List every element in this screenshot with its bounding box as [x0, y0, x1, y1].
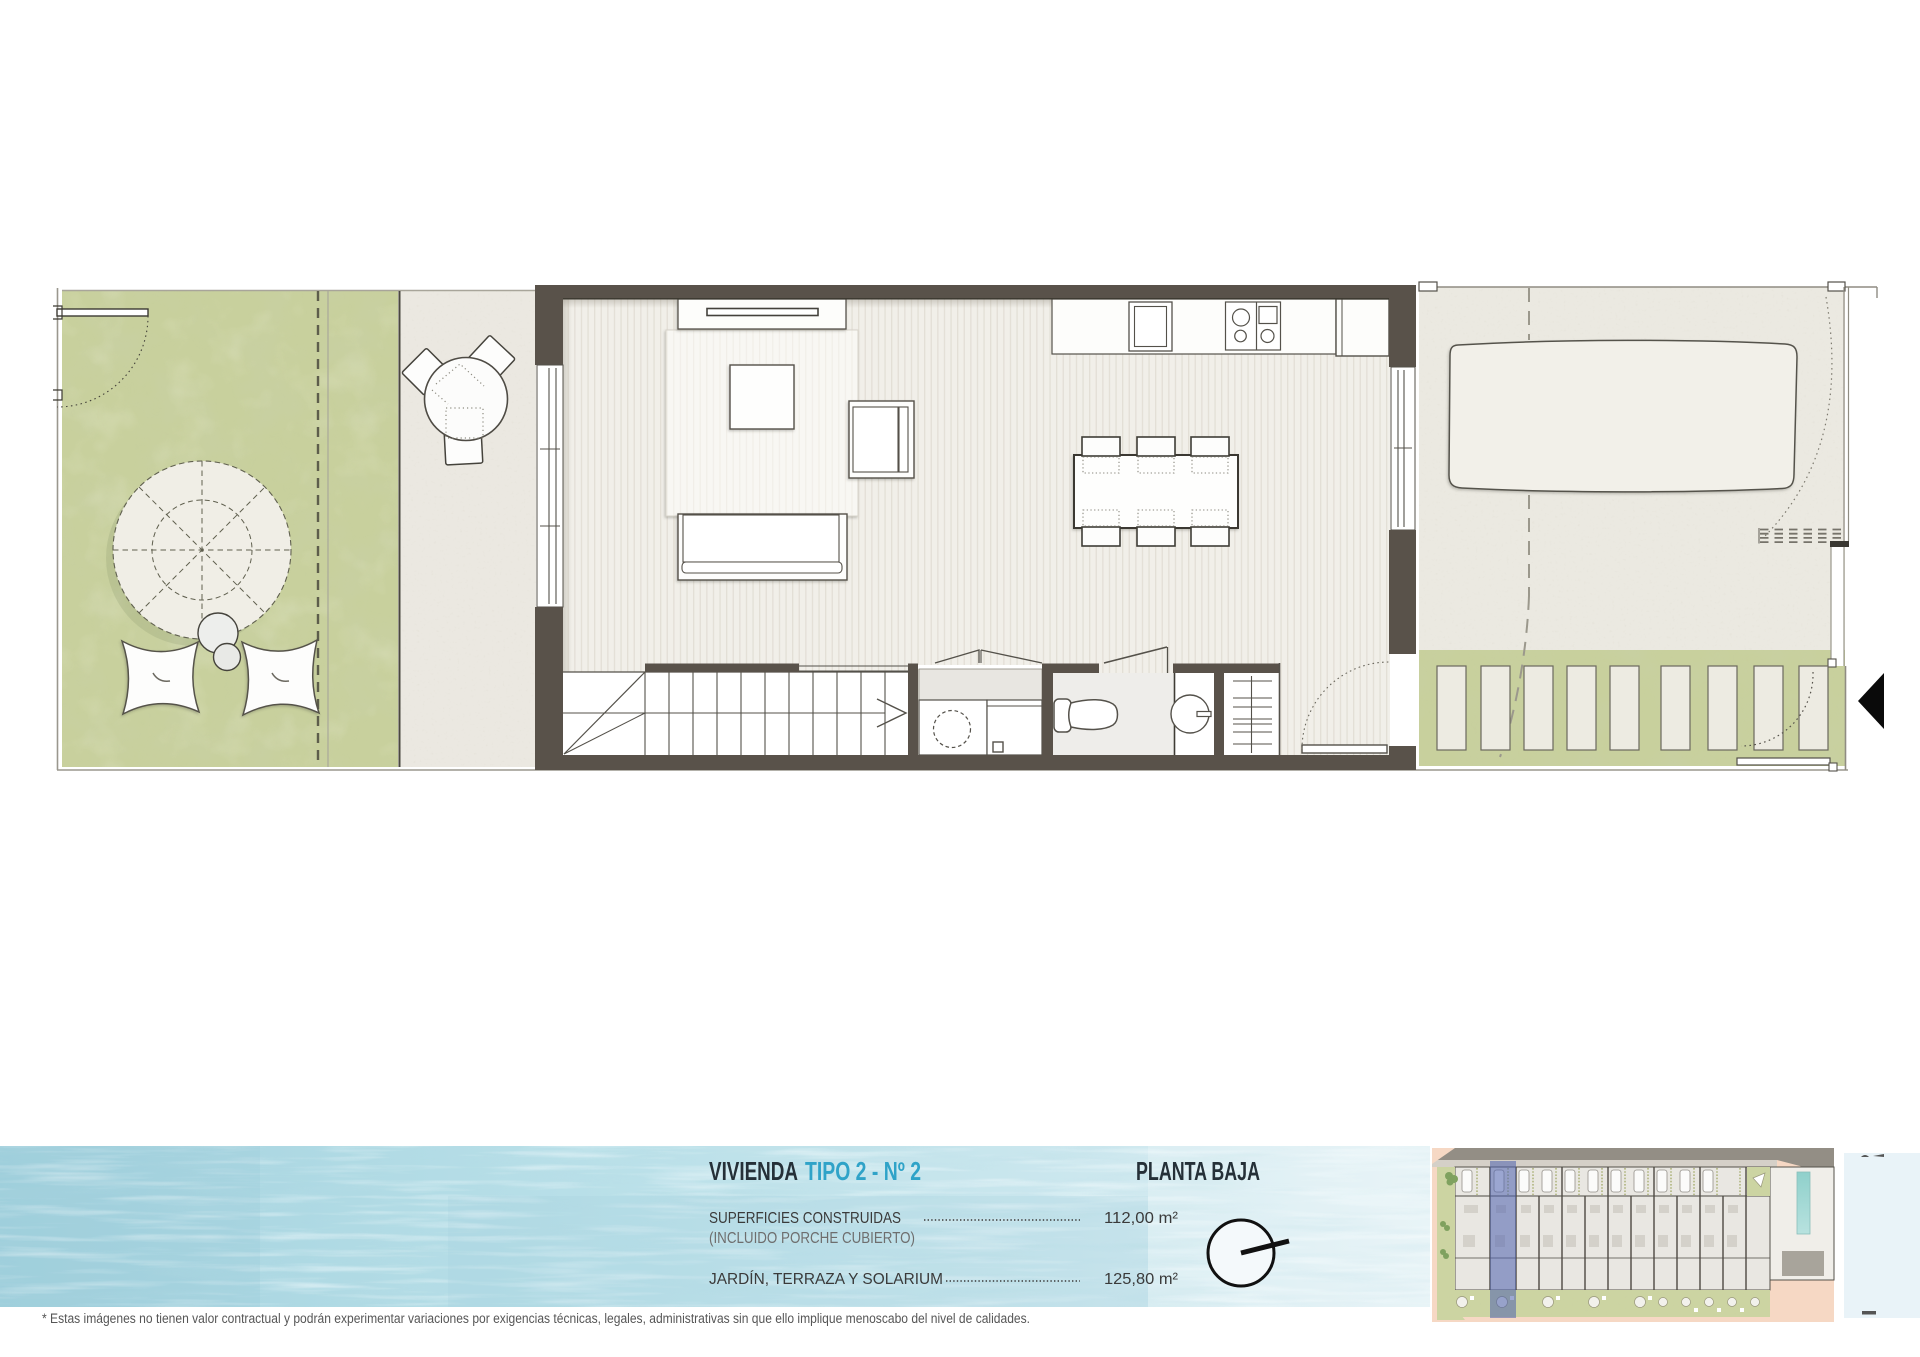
- svg-text:VIVIENDA: VIVIENDA: [709, 1156, 798, 1186]
- svg-text:PLANTA BAJA: PLANTA BAJA: [1136, 1156, 1260, 1186]
- svg-text:* Estas imágenes no tienen val: * Estas imágenes no tienen valor contrac…: [42, 1311, 1030, 1326]
- svg-text:(INCLUIDO PORCHE CUBIERTO): (INCLUIDO PORCHE CUBIERTO): [709, 1230, 915, 1247]
- svg-text:JARDÍN, TERRAZA Y SOLARIUM: JARDÍN, TERRAZA Y SOLARIUM: [709, 1269, 943, 1288]
- svg-text:112,00 m²: 112,00 m²: [1104, 1210, 1179, 1227]
- svg-text:125,80 m²: 125,80 m²: [1104, 1271, 1179, 1288]
- svg-text:SUPERFICIES CONSTRUIDAS: SUPERFICIES CONSTRUIDAS: [709, 1210, 901, 1227]
- svg-text:TIPO 2 - Nº 2: TIPO 2 - Nº 2: [805, 1156, 921, 1186]
